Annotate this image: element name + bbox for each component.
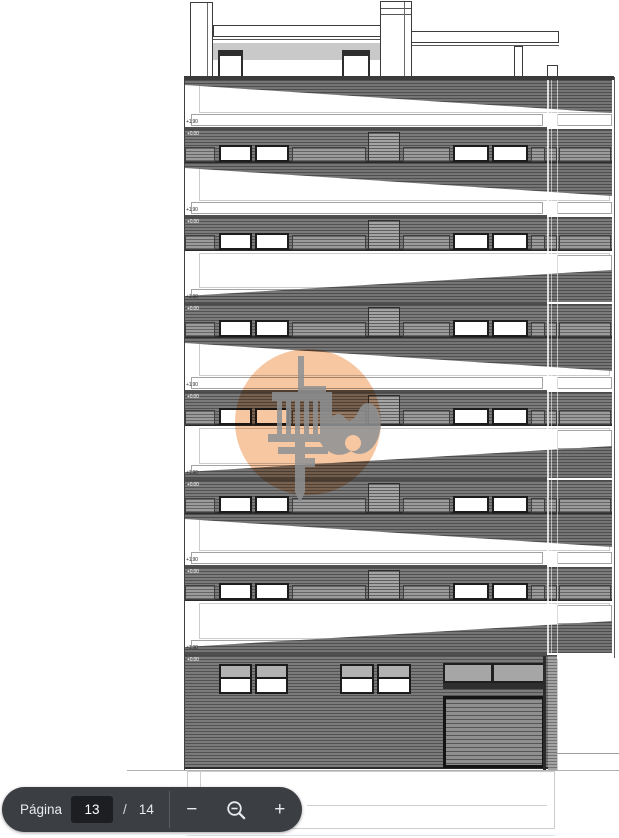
facade-filler-panel <box>548 498 557 513</box>
reference-line-1 <box>547 80 549 655</box>
window-pane <box>219 320 252 337</box>
garage-right-edge <box>543 656 546 770</box>
facade-filler-panel <box>403 585 450 600</box>
page-number-input[interactable]: 13 <box>71 796 113 823</box>
level-label-zero: +0.00 <box>187 132 199 137</box>
zoom-reset-button[interactable] <box>214 787 258 832</box>
vent-grille <box>368 132 400 162</box>
window-pane <box>453 583 489 600</box>
page-separator: / <box>123 802 127 817</box>
ground-window-pane <box>340 664 374 694</box>
page-total: 14 <box>139 802 154 817</box>
facade-filler-panel <box>548 585 557 600</box>
ground-floor-band: +0.00 <box>185 655 557 769</box>
facade-filler-panel <box>403 147 450 162</box>
level-strip-left-box <box>191 552 543 564</box>
facade-filler-panel <box>559 147 611 162</box>
building-right-edge <box>614 77 615 658</box>
window-pane <box>219 583 252 600</box>
garage-transom-panel <box>445 665 491 681</box>
level-label-zero: +0.00 <box>187 307 199 312</box>
window-pane <box>255 145 289 162</box>
pdf-toolbar: Página 13 / 14 − + <box>2 787 302 832</box>
facade-filler-panel <box>403 410 450 425</box>
building-left-edge <box>184 77 185 770</box>
facade-filler-panel <box>559 410 611 425</box>
facade-filler-panel <box>559 585 611 600</box>
level-label-upper: +1.90 <box>186 646 198 651</box>
level-label-zero: +0.00 <box>187 570 199 575</box>
site-bottom-line <box>187 835 555 836</box>
facade-filler-panel <box>185 498 215 513</box>
window-pane <box>492 496 528 513</box>
basement-inner-line <box>307 805 547 806</box>
vent-grille <box>368 220 400 250</box>
facade-filler-panel <box>403 322 450 337</box>
ground-window-pane <box>219 664 252 694</box>
facade-filler-panel <box>559 235 611 250</box>
window-pane <box>453 145 489 162</box>
ground-pilaster <box>548 656 557 770</box>
ground-window-upper-gray <box>221 666 250 679</box>
zoom-out-button[interactable]: − <box>170 787 214 832</box>
ground-window-upper-gray <box>342 666 372 679</box>
facade-filler-panel <box>403 235 450 250</box>
level-strip-right-box <box>557 552 612 564</box>
facade-filler-panel <box>292 585 366 600</box>
level-label-upper: +1.90 <box>186 471 198 476</box>
window-pane <box>492 233 528 250</box>
facade-filler-panel <box>185 147 215 162</box>
window-pane <box>453 233 489 250</box>
level-label-zero: +0.00 <box>187 220 199 225</box>
facade-filler-panel <box>548 235 557 250</box>
facade-filler-panel <box>531 585 545 600</box>
ground-window-upper-gray <box>379 666 409 679</box>
level-label-zero: +0.00 <box>187 395 199 400</box>
facade-filler-panel <box>548 322 557 337</box>
facade-filler-panel <box>292 322 366 337</box>
facade-filler-panel <box>292 235 366 250</box>
garage-transom <box>443 663 545 683</box>
vent-grille <box>368 307 400 337</box>
garage-transom-bar <box>443 683 545 689</box>
ground-window-pane <box>377 664 411 694</box>
level-label-upper: +1.90 <box>186 383 198 388</box>
facade-filler-panel <box>185 235 215 250</box>
facade-filler-panel <box>559 498 611 513</box>
watermark-caliper-wave-icon <box>232 346 384 504</box>
level-strip-right-box <box>557 114 612 126</box>
level-label-zero: +0.00 <box>187 483 199 488</box>
ground-window-pane <box>255 664 288 694</box>
level-label-upper: +1.90 <box>186 208 198 213</box>
facade-filler-panel <box>531 235 545 250</box>
window-pane <box>255 583 289 600</box>
garage-door <box>443 696 545 768</box>
reference-line-2 <box>551 80 552 655</box>
level-strip-right-box <box>557 430 612 449</box>
pdf-viewer-canvas: +1.90+0.00+1.90+0.00+1.90+0.00+1.90+0.00… <box>0 0 619 838</box>
window-pane <box>453 320 489 337</box>
facade-filler-panel <box>531 147 545 162</box>
window-pane <box>453 408 489 425</box>
window-pane <box>492 583 528 600</box>
garage-transom-panel <box>494 665 543 681</box>
zoom-in-button[interactable]: + <box>258 787 302 832</box>
level-label-upper: +1.90 <box>186 295 198 300</box>
magnifier-minus-icon <box>223 797 249 823</box>
window-pane <box>219 233 252 250</box>
level-label-upper: +1.90 <box>186 558 198 563</box>
facade-filler-panel <box>531 322 545 337</box>
vent-grille <box>368 570 400 600</box>
level-strip-left-box <box>191 114 543 126</box>
facade-filler-panel <box>548 410 557 425</box>
facade-filler-panel <box>185 322 215 337</box>
level-strip-right-box <box>557 377 612 389</box>
level-strip-right-box <box>557 605 612 624</box>
facade-filler-panel <box>531 498 545 513</box>
page-label: Página <box>20 802 62 817</box>
facade-filler-panel <box>403 498 450 513</box>
reference-line-3 <box>557 80 558 655</box>
level-label-upper: +1.90 <box>186 120 198 125</box>
level-strip-right-box <box>557 202 612 214</box>
level-label-zero: +0.00 <box>187 658 199 663</box>
window-pane <box>219 145 252 162</box>
facade-filler-panel <box>185 585 215 600</box>
window-pane <box>492 320 528 337</box>
facade-filler-panel <box>292 147 366 162</box>
window-pane <box>453 496 489 513</box>
window-pane <box>492 408 528 425</box>
level-strip-left-box <box>191 202 543 214</box>
facade-filler-panel <box>559 322 611 337</box>
ground-window-upper-gray <box>257 666 286 679</box>
facade-filler-panel <box>531 410 545 425</box>
window-pane <box>255 233 289 250</box>
window-pane <box>492 145 528 162</box>
window-pane <box>255 320 289 337</box>
facade-filler-panel <box>185 410 215 425</box>
facade-filler-panel <box>548 147 557 162</box>
site-line-right <box>557 753 619 754</box>
